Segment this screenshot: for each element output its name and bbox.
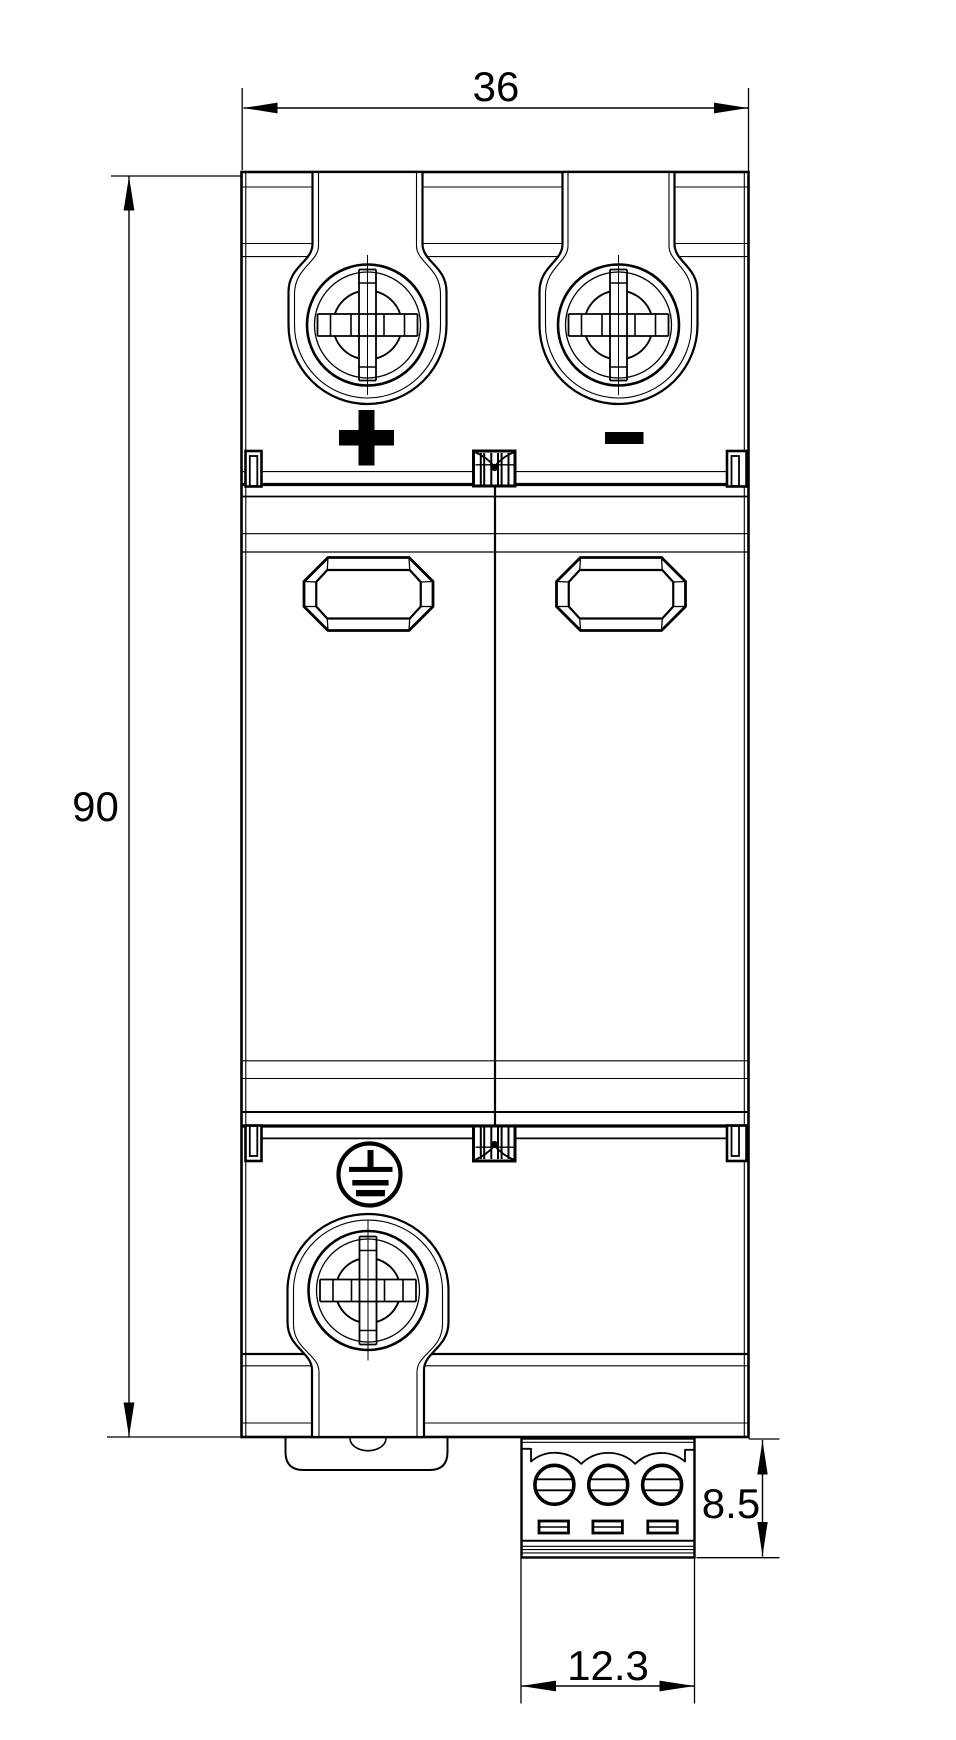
- svg-text:12.3: 12.3: [567, 1642, 649, 1689]
- svg-text:8.5: 8.5: [702, 1480, 760, 1527]
- svg-text:90: 90: [72, 783, 119, 830]
- svg-text:36: 36: [473, 63, 520, 110]
